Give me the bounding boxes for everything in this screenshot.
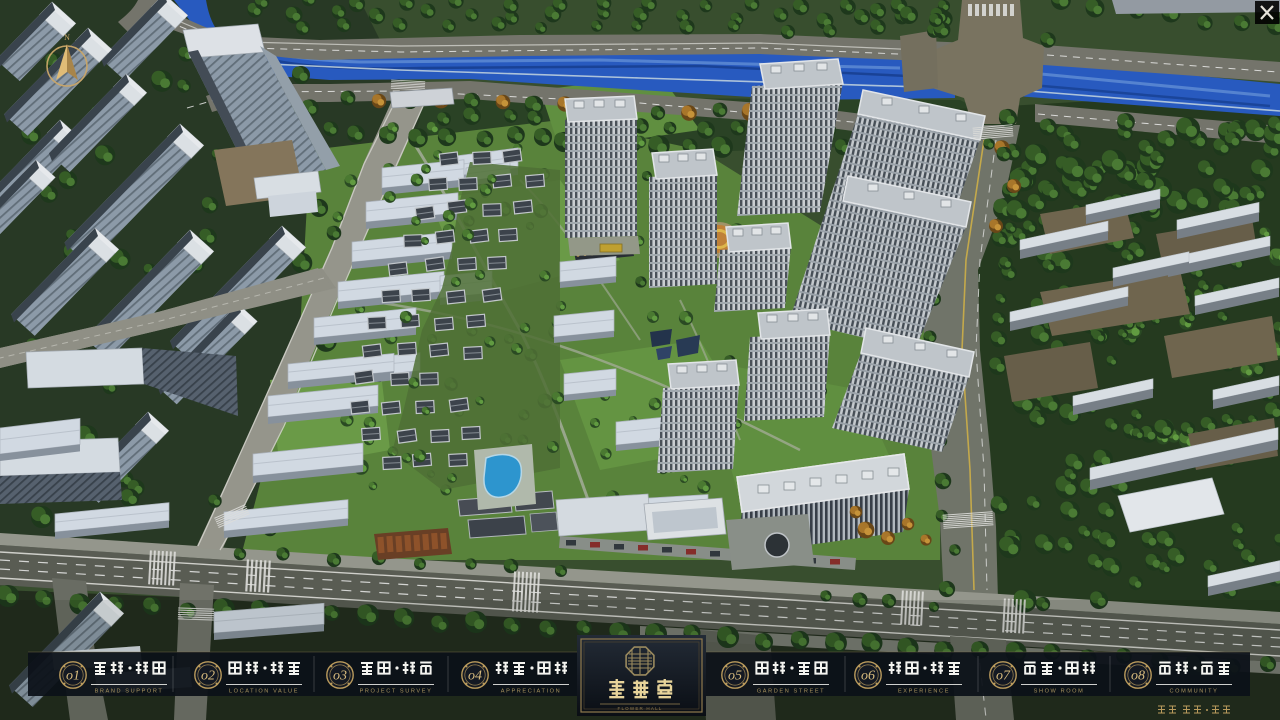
svg-text:o5: o5 (728, 669, 742, 684)
svg-text:o7: o7 (996, 669, 1011, 684)
svg-text:FLOWER HALL: FLOWER HALL (618, 706, 663, 711)
svg-text:SHOW ROOM: SHOW ROOM (1034, 689, 1085, 695)
svg-text:o8: o8 (1131, 669, 1145, 684)
svg-text:APPRECIATION: APPRECIATION (501, 689, 561, 695)
svg-text:o1: o1 (66, 669, 80, 684)
svg-text:LOCATION VALUE: LOCATION VALUE (229, 689, 299, 695)
svg-text:o2: o2 (201, 669, 215, 684)
svg-text:GARDEN STREET: GARDEN STREET (757, 689, 825, 695)
svg-text:BRAND SUPPORT: BRAND SUPPORT (95, 689, 164, 695)
svg-text:o6: o6 (861, 669, 875, 684)
svg-text:PROJECT SURVEY: PROJECT SURVEY (360, 689, 433, 695)
svg-text:o4: o4 (468, 669, 482, 684)
svg-text:o3: o3 (333, 669, 347, 684)
svg-text:EXPERIENCE: EXPERIENCE (898, 689, 950, 695)
svg-text:COMMUNITY: COMMUNITY (1170, 689, 1219, 695)
svg-text:N: N (64, 33, 70, 42)
